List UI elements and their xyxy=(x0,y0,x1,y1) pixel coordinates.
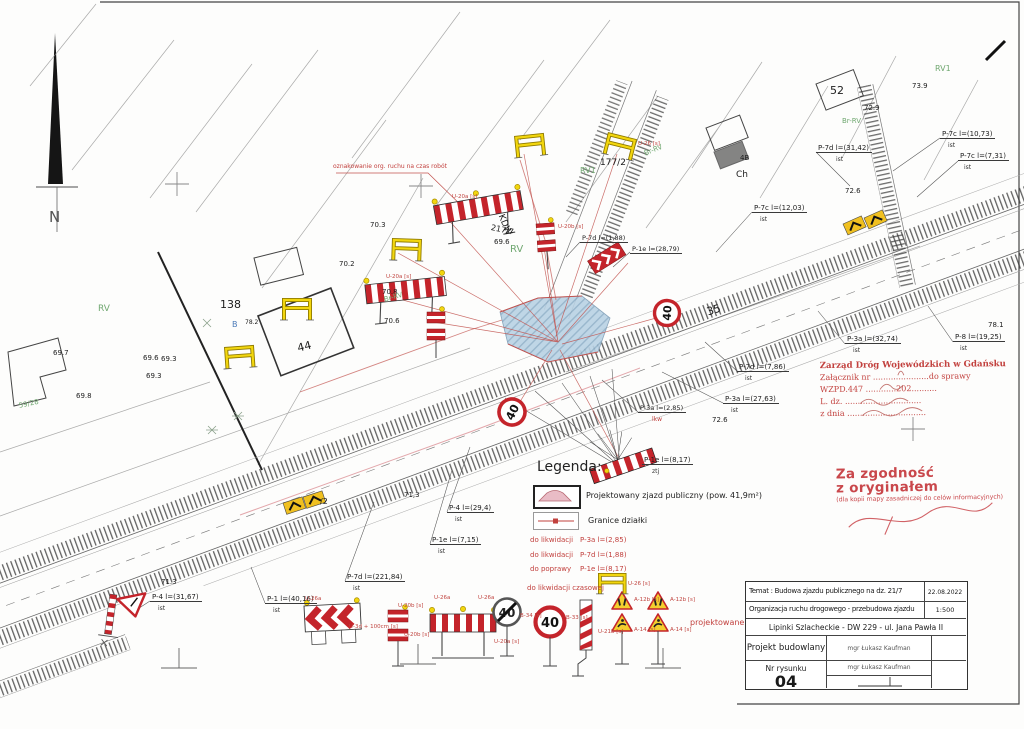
sign-code-label: U-21b [s] xyxy=(598,629,623,635)
marking-callout-label: P-4 l=(31,67) xyxy=(150,593,202,602)
svg-text:N: N xyxy=(49,208,60,226)
marking-callout-label: P-8 l=(19,25) xyxy=(953,333,1005,342)
sign-code-label: U-26a xyxy=(478,595,494,601)
parcel-number-label: 177/2 xyxy=(600,158,626,168)
callout-tag: ist xyxy=(836,156,843,163)
title-scale: 1:500 xyxy=(924,606,966,614)
elevation-label: 70.6 xyxy=(384,317,400,325)
marking-callout-label: P-7d l=(31,42) xyxy=(816,144,872,153)
sign-code-label: U-26 [s] xyxy=(628,581,650,587)
title-location: Lipinki Szlacheckie - DW 229 - ul. Jana … xyxy=(746,623,966,632)
callout-tag: lkw xyxy=(652,416,662,423)
land-use-label: B xyxy=(232,320,238,329)
callout-tag: ist xyxy=(853,347,860,354)
sign-code-label: U-20a [s] xyxy=(386,274,411,280)
barrier-u26-icon xyxy=(280,300,314,320)
roadside-band xyxy=(0,635,131,699)
sign-code-label: B-33 [s] xyxy=(566,615,588,621)
legend-boundary-swatch xyxy=(533,512,579,530)
elevation-label: 72.6 xyxy=(845,187,861,195)
legend: Legenda: Projektowany zjazd publiczny (p… xyxy=(524,455,759,605)
sign-code-label: A-14 [s] xyxy=(670,627,692,633)
callout-tag: ist xyxy=(760,216,767,223)
marking-callout-label: P-1e l=(28,79) xyxy=(630,245,682,254)
elevation-label: 69.7 xyxy=(53,349,69,357)
certify-stamp: Za zgodność z oryginałem (dla kopii mapy… xyxy=(836,465,1003,504)
marking-callout-label: P-3a l=(27,63) xyxy=(723,395,779,404)
legend-tag: do likwidacji xyxy=(530,551,573,559)
building-label: 4B xyxy=(740,154,749,162)
elevation-label: 78.1 xyxy=(988,321,1004,329)
callout-tag: ist xyxy=(273,607,280,614)
legend-boundary-label: Granice działki xyxy=(588,516,647,525)
elevation-label: 72.9 xyxy=(864,104,880,112)
sign-yellow-chevron-icon xyxy=(283,497,306,515)
barrier-u26-icon xyxy=(512,135,548,158)
title-project-type: Projekt budowlany xyxy=(746,643,826,653)
temporary-marking-note: oznakowanie org. ruchu na czas robót xyxy=(333,163,447,170)
barrier-u20a-icon xyxy=(429,606,496,658)
callout-tag: ist xyxy=(158,605,165,612)
title-subject: Organizacja ruchu drogowego - przebudowa… xyxy=(749,605,922,613)
title-signature xyxy=(854,675,914,689)
callout-tag: ist xyxy=(353,585,360,592)
marking-callout-label: P-3a l=(2,85) xyxy=(638,404,686,413)
sign-code-label: U-26a xyxy=(305,596,321,602)
callout-tag: ist xyxy=(948,142,955,149)
parcel-number-label: 138 xyxy=(220,298,241,311)
marking-callout-label: P-4 l=(29,4) xyxy=(447,504,494,513)
signature-squiggle xyxy=(840,488,1011,536)
zdw-stamp: Zarząd Dróg Wojewódzkich w Gdańsku Załąc… xyxy=(820,358,1024,420)
land-use-label: RV1 xyxy=(580,166,596,175)
sign-b34-icon: 40 xyxy=(494,599,521,657)
callout-tag: ist xyxy=(964,164,971,171)
legend-value: P-3a l=(2,85) xyxy=(580,536,626,544)
elevation-label: 71.3 xyxy=(161,578,177,586)
sign-yellow-chevron-icon xyxy=(843,216,866,235)
callout-tag: ist xyxy=(960,345,967,352)
svg-text:40: 40 xyxy=(541,616,559,631)
sign-b33-icon: 40 xyxy=(495,395,530,430)
title-author: mgr Łukasz Kaufman xyxy=(827,645,931,652)
marking-callout-label: P-7c l=(7,31) xyxy=(958,152,1009,161)
legend-tag: do likwidacji xyxy=(530,536,573,544)
legend-tag: do likwidacji czasowej xyxy=(527,584,604,592)
land-use-label: RV xyxy=(510,244,523,255)
title-topic: Temat : Budowa zjazdu publicznego na dz.… xyxy=(749,587,922,595)
sign-code-label: U-26 [s] xyxy=(638,141,660,147)
sign-code-label: U-20b [s] xyxy=(398,603,423,609)
parcel-number-label: /2 xyxy=(320,497,328,506)
barrier-u3d-icon xyxy=(304,598,362,645)
sign-u21b-icon xyxy=(572,600,592,676)
drawing-sheet: N xyxy=(0,0,1024,729)
parcel-number-label: 52 xyxy=(830,84,844,97)
sign-code-label: U-3d + 100cm [s] xyxy=(349,624,398,630)
elevation-label: 69.6 xyxy=(143,354,159,362)
marking-callout-label: P-7d l=(7,86) xyxy=(737,363,789,372)
elevation-label: 78.2 xyxy=(245,319,258,326)
legend-value: P-7d l=(1,88) xyxy=(580,551,627,559)
marking-callout-label: P-1e l=(7,15) xyxy=(430,536,481,545)
barrier-u26-icon xyxy=(222,347,257,369)
title-author: mgr Łukasz Kaufman xyxy=(827,664,931,671)
legend-driveway-label: Projektowany zjazd publiczny (pow. 41,9m… xyxy=(586,491,762,500)
handwriting-marks xyxy=(820,366,1021,428)
elevation-label: 70.2 xyxy=(339,260,355,268)
drawing-number: 04 xyxy=(746,672,826,691)
kdw-road xyxy=(530,76,670,325)
land-use-label: Br-RV xyxy=(842,117,861,125)
sign-code-label: U-20b [s] xyxy=(558,224,583,230)
marking-callout-label: P-7c l=(10,73) xyxy=(940,130,995,139)
legend-value: P-1e l=(8,17) xyxy=(580,565,626,573)
callout-tag: ist xyxy=(745,375,752,382)
sign-code-label: B-34 [s] xyxy=(520,613,542,619)
title-block: Temat : Budowa zjazdu publicznego na dz.… xyxy=(745,581,968,690)
sign-code-label: U-26a xyxy=(434,595,450,601)
title-date: 22.08.2022 xyxy=(924,589,966,596)
building-label: Ch xyxy=(736,170,748,180)
elevation-label: 71,3 xyxy=(404,491,420,499)
elevation-label: 69.3 xyxy=(161,355,177,363)
callout-tag: ist xyxy=(438,548,445,555)
marking-callout-label: P-7c l=(12,03) xyxy=(752,204,807,213)
sign-b33-icon: 40 xyxy=(654,300,681,327)
marking-callout-label: P-7d l=(221,84) xyxy=(345,573,405,582)
proposed-signs-label: projektowane xyxy=(690,618,744,627)
legend-tag: do poprawy xyxy=(530,565,571,573)
projected-driveway xyxy=(500,296,610,362)
land-use-label: RV1 xyxy=(935,64,951,73)
land-use-label: RV xyxy=(98,304,110,314)
svg-text:40: 40 xyxy=(660,305,674,322)
sign-u20b-icon xyxy=(427,307,445,358)
north-arrow-icon: N xyxy=(36,33,78,232)
marking-callout-label: P-7d l=(1,88) xyxy=(580,234,628,243)
elevation-label: 69.6 xyxy=(494,238,510,246)
elevation-label: 70.3 xyxy=(370,221,386,229)
elevation-label: 72.6 xyxy=(712,416,728,424)
sign-yellow-chevron-icon xyxy=(864,210,887,229)
sign-code-label: A-14 [s] xyxy=(634,627,656,633)
legend-title: Legenda: xyxy=(537,459,602,475)
callout-tag: ist xyxy=(731,407,738,414)
elevation-label: 73.9 xyxy=(912,82,928,90)
elevation-label: 69.3 xyxy=(146,372,162,380)
legend-driveway-swatch xyxy=(533,485,581,509)
marking-callout-label: P-3a l=(32,74) xyxy=(845,335,901,344)
sign-code-label: U-20a [s] xyxy=(452,194,477,200)
callout-tag: ist xyxy=(455,516,462,523)
sign-code-label: U-20a [s] xyxy=(494,639,519,645)
elevation-label: 69.8 xyxy=(76,392,92,400)
sign-code-label: U-20b [s] xyxy=(404,632,429,638)
